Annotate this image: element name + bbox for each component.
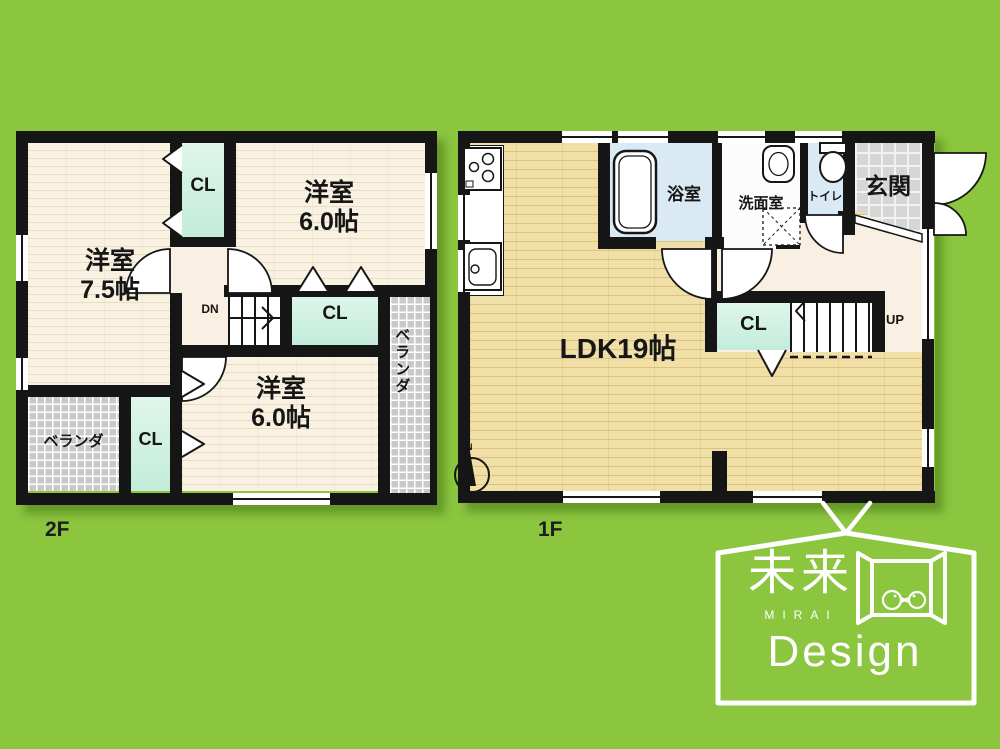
- entrance-step: [855, 215, 922, 242]
- logo-kanji: 未来: [740, 550, 862, 598]
- logo-house-outline: [700, 488, 1000, 718]
- bath-label: 浴室: [654, 185, 714, 205]
- toilet-label: トイレ: [804, 191, 846, 204]
- closet-label: CL: [182, 175, 224, 197]
- door-arc: [228, 249, 272, 293]
- room-size: 6.0帖: [251, 404, 311, 432]
- logo-connector-lines: [823, 503, 870, 533]
- room-name: 洋室: [304, 179, 354, 207]
- folding-door-mark: [163, 209, 182, 237]
- folding-door-mark: [182, 431, 204, 457]
- floor-tag-1f: 1F: [538, 518, 563, 542]
- room-size: 7.5帖: [80, 276, 140, 304]
- closet-label: CL: [292, 303, 378, 325]
- floor-plan-image: 洋室 7.5帖 洋室 6.0帖 洋室 6.0帖 CL CL CL ベランダ ベラ…: [0, 0, 1000, 749]
- floor-plan-2f: 洋室 7.5帖 洋室 6.0帖 洋室 6.0帖 CL CL CL ベランダ ベラ…: [16, 131, 437, 505]
- logo-bird-eye: [913, 595, 916, 598]
- logo-bird-icon: [909, 592, 925, 608]
- logo-window-shutter-right: [931, 553, 945, 623]
- washroom-label: 洗面室: [722, 195, 800, 212]
- folding-door-mark: [758, 350, 786, 376]
- room-size: 6.0帖: [299, 208, 359, 236]
- bathtub-icon: [614, 151, 656, 233]
- room-label: 洋室 6.0帖: [206, 375, 356, 433]
- logo-bird-eye: [894, 595, 897, 598]
- room-name: 洋室: [256, 375, 306, 403]
- closet-label: CL: [717, 313, 790, 336]
- stairs-arrow: [262, 307, 273, 329]
- ldk-label: LDK19帖: [548, 333, 688, 365]
- compass-needle-icon: [464, 452, 476, 486]
- entry-door-arc: [934, 203, 966, 235]
- washbasin-icon: [763, 146, 794, 182]
- folding-door-mark: [163, 145, 182, 173]
- compass: N: [450, 442, 494, 498]
- veranda-label: ベランダ: [393, 327, 410, 395]
- room-name: 洋室: [85, 247, 135, 275]
- compass-north-label: N: [466, 442, 473, 452]
- stairs-arrow: [796, 301, 805, 321]
- closet-label: CL: [131, 429, 170, 450]
- stairs-label: UP: [886, 313, 922, 328]
- toilet-icon-bowl: [820, 152, 846, 182]
- logo-word: Design: [738, 630, 952, 674]
- entry-door-arc: [934, 153, 986, 205]
- door-arc: [662, 249, 712, 299]
- room-label: 洋室 6.0帖: [254, 179, 404, 237]
- veranda-label: ベランダ: [28, 433, 119, 450]
- stairs-label: DN: [190, 303, 230, 317]
- room-label: 洋室 7.5帖: [50, 247, 170, 305]
- entrance-label: 玄関: [857, 173, 919, 199]
- logo-romaji: MIRAI: [742, 609, 860, 621]
- floor-tag-2f: 2F: [45, 518, 70, 542]
- folding-door-mark: [346, 267, 376, 291]
- floor-plan-1f: LDK19帖 浴室 洗面室 トイレ 玄関 CL UP: [458, 131, 935, 503]
- logo-bird-icon: [883, 591, 901, 609]
- folding-door-mark: [298, 267, 328, 291]
- door-arc: [805, 215, 843, 253]
- door-arc: [722, 249, 772, 299]
